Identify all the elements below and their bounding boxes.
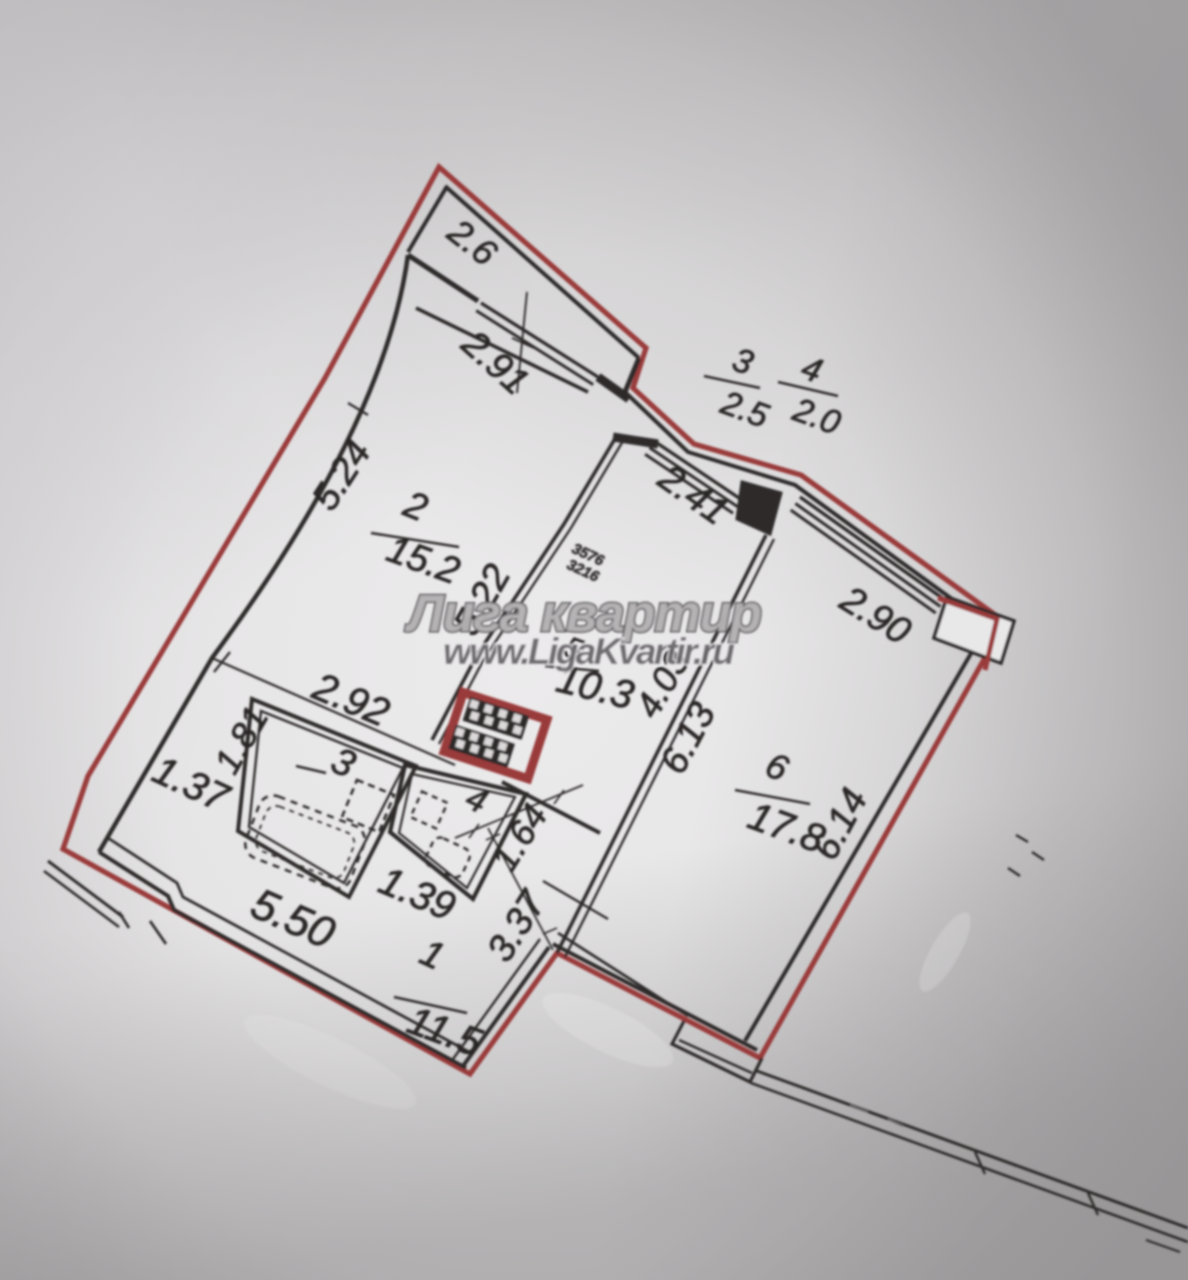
svg-text:www.LigaKvartir.ru: www.LigaKvartir.ru [443, 631, 735, 672]
